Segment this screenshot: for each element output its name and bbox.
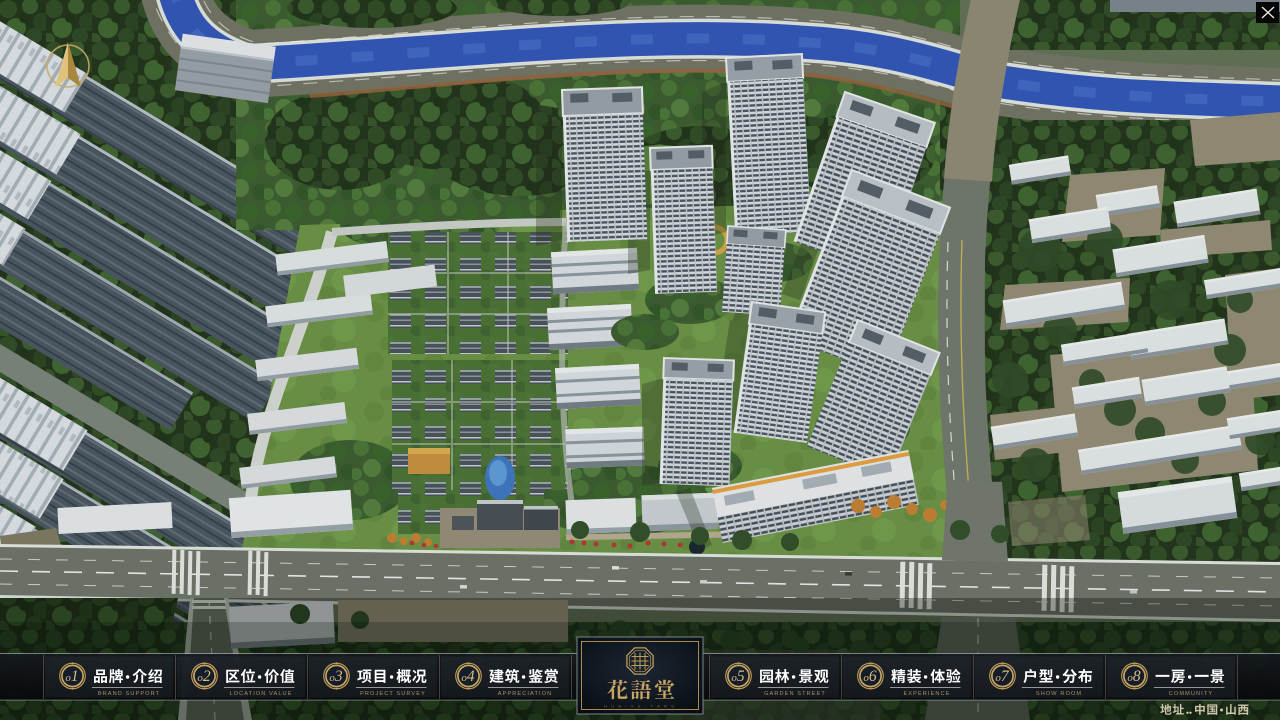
svg-text:LOCATION VALUE: LOCATION VALUE bbox=[229, 691, 292, 697]
svg-text:APPRECIATION: APPRECIATION bbox=[498, 691, 552, 697]
svg-text:EXPERIENCE: EXPERIENCE bbox=[903, 691, 950, 697]
svg-text:BRAND SUPPORT: BRAND SUPPORT bbox=[98, 691, 160, 697]
svg-text:PROJECT SURVEY: PROJECT SURVEY bbox=[360, 691, 426, 697]
svg-text:GARDEN STREET: GARDEN STREET bbox=[764, 691, 826, 697]
svg-text:SHOW ROOM: SHOW ROOM bbox=[1036, 691, 1082, 697]
svg-text:H U A - Y U - T A N G: H U A - Y U - T A N G bbox=[604, 705, 676, 709]
svg-text:COMMUNITY: COMMUNITY bbox=[1169, 691, 1213, 697]
